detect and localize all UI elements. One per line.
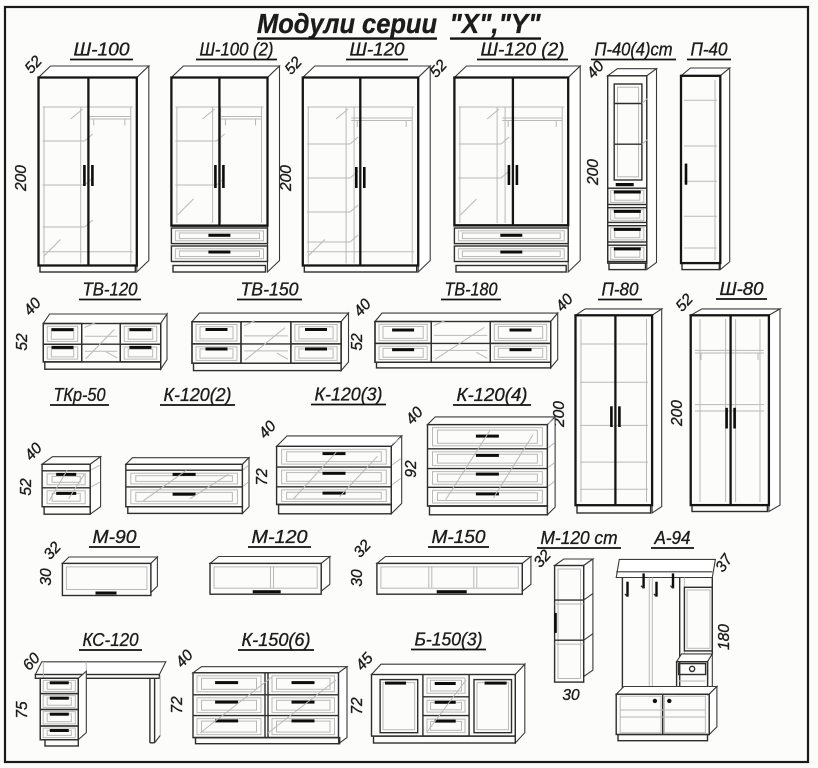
svg-text:К-120(3): К-120(3) xyxy=(315,385,383,405)
svg-text:200: 200 xyxy=(13,165,30,192)
svg-text:72: 72 xyxy=(169,696,186,714)
svg-text:Ш-120 (2): Ш-120 (2) xyxy=(481,40,565,60)
svg-text:"X","Y": "X","Y" xyxy=(450,8,542,39)
svg-text:Ш-100 (2): Ш-100 (2) xyxy=(200,40,274,60)
svg-text:ТВ-150: ТВ-150 xyxy=(241,280,299,300)
svg-text:Ш-80: Ш-80 xyxy=(720,279,764,299)
svg-text:ТВ-120: ТВ-120 xyxy=(83,280,138,300)
svg-text:КС-120: КС-120 xyxy=(83,630,139,650)
svg-text:200: 200 xyxy=(669,400,686,427)
svg-text:52: 52 xyxy=(349,333,366,351)
svg-text:72: 72 xyxy=(254,468,271,486)
svg-text:К-120(4): К-120(4) xyxy=(457,385,528,405)
svg-text:А-94: А-94 xyxy=(654,528,691,548)
svg-text:Б-150(3): Б-150(3) xyxy=(415,630,483,650)
svg-text:180: 180 xyxy=(716,624,733,650)
svg-text:52: 52 xyxy=(14,333,31,351)
svg-text:Ш-120: Ш-120 xyxy=(350,40,405,60)
svg-text:М-150: М-150 xyxy=(432,527,486,547)
svg-text:75: 75 xyxy=(14,701,31,719)
svg-text:30: 30 xyxy=(349,569,366,587)
svg-text:М-120: М-120 xyxy=(252,527,308,547)
svg-text:92: 92 xyxy=(403,460,420,478)
svg-text:Модули серии: Модули серии xyxy=(257,8,437,39)
svg-text:П-40(4)ст: П-40(4)ст xyxy=(595,40,673,60)
svg-text:52: 52 xyxy=(18,478,35,496)
svg-text:П-40: П-40 xyxy=(691,40,728,60)
svg-text:К-150(6): К-150(6) xyxy=(242,630,311,650)
svg-text:П-80: П-80 xyxy=(602,280,639,300)
svg-text:200: 200 xyxy=(585,159,602,186)
svg-text:Ш-100: Ш-100 xyxy=(74,40,130,60)
svg-text:М-120 ст: М-120 ст xyxy=(541,528,618,548)
svg-text:М-90: М-90 xyxy=(93,527,137,547)
svg-text:72: 72 xyxy=(349,697,366,715)
svg-text:200: 200 xyxy=(278,165,295,192)
svg-text:ТКр-50: ТКр-50 xyxy=(54,385,106,405)
svg-text:ТВ-180: ТВ-180 xyxy=(445,280,498,300)
svg-text:30: 30 xyxy=(562,687,580,704)
svg-text:К-120(2): К-120(2) xyxy=(164,385,232,405)
svg-text:30: 30 xyxy=(38,568,55,586)
